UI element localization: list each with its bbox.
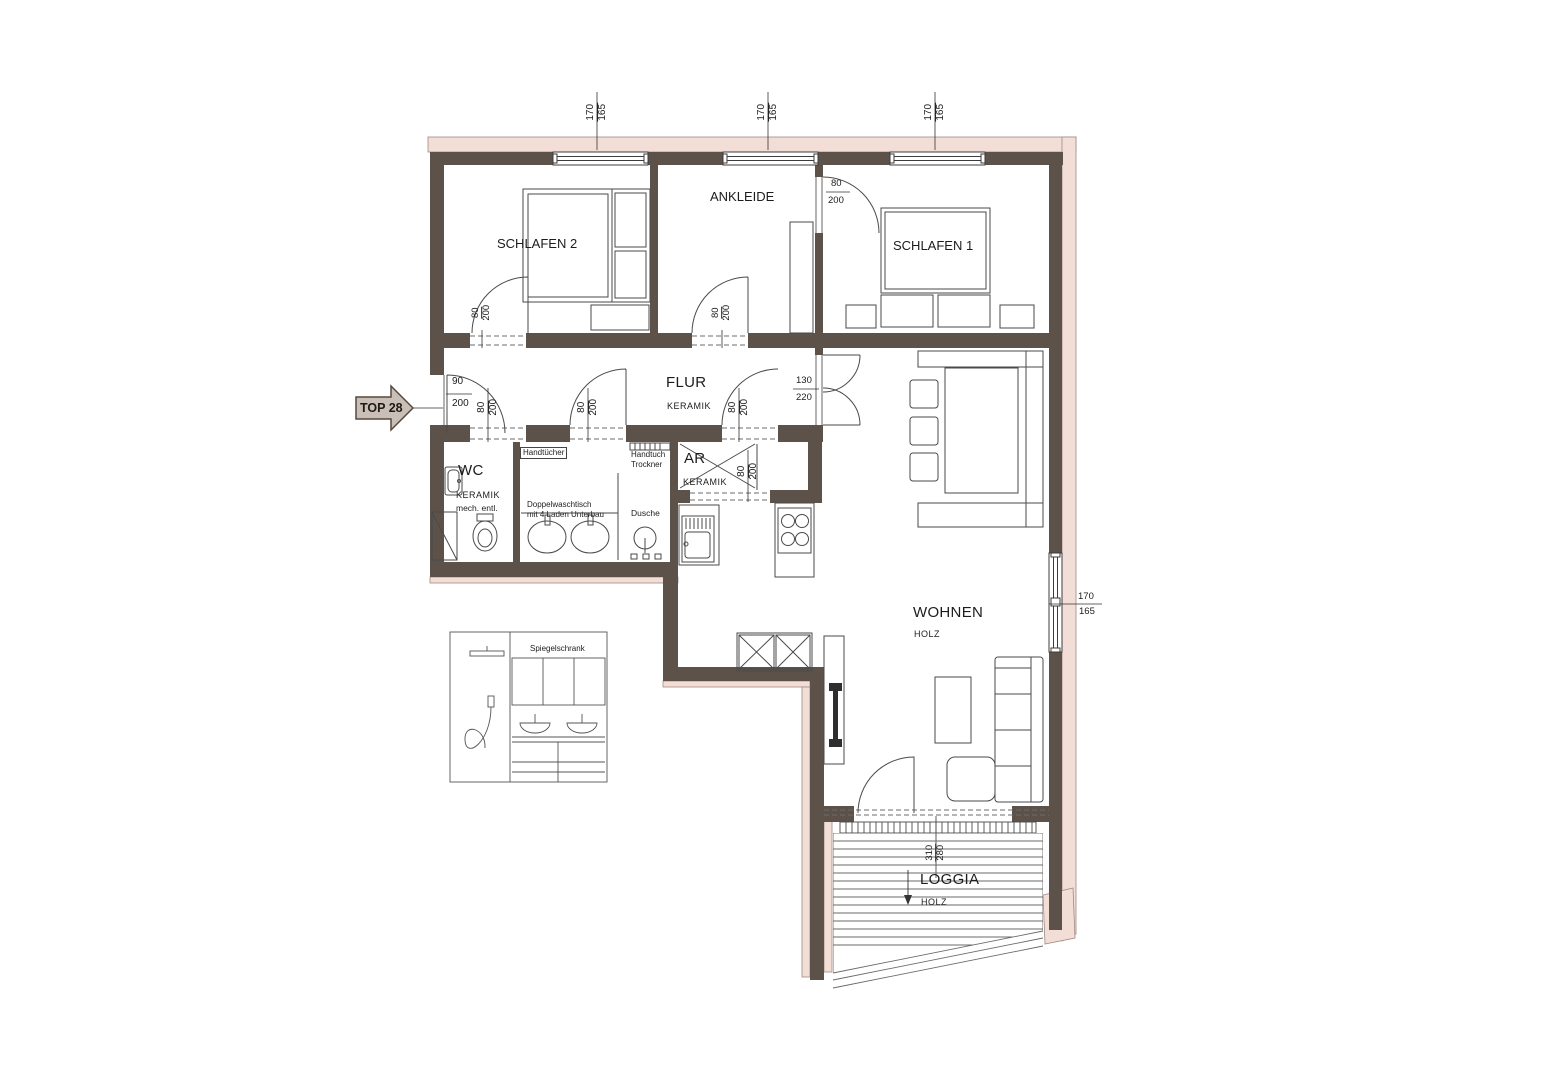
label-dusche: Dusche <box>631 508 660 518</box>
dim-window-right-h: 165 <box>1079 606 1095 617</box>
stove-icon <box>778 508 811 553</box>
window-top-3 <box>890 152 985 165</box>
nightstand <box>1000 305 1034 328</box>
bed-bench <box>591 305 649 330</box>
room-label-schlafen2: SCHLAFEN 2 <box>497 236 577 251</box>
dim-ar-door: 80200 <box>728 451 768 491</box>
floor-label-ar: KERAMIK <box>683 477 727 487</box>
toilet-icon <box>473 514 497 551</box>
loggia-deck-edge <box>833 931 1043 988</box>
furniture-schlafen2 <box>523 189 650 330</box>
room-label-wohnen: WOHNEN <box>913 604 983 621</box>
dim-bath-door: 80200 <box>568 387 608 427</box>
floor-label-loggia: HOLZ <box>921 897 947 907</box>
chair <box>910 380 938 408</box>
dim-window-2: 170165 <box>746 90 790 134</box>
label-spiegelschrank: Spiegelschrank <box>530 644 585 654</box>
room-label-ankleide: ANKLEIDE <box>710 189 774 204</box>
shower-detail <box>465 646 504 748</box>
dim-window-1: 170165 <box>575 90 619 134</box>
dim-entry-w: 90 <box>452 376 463 387</box>
dim-schlafen2-door: 80200 <box>462 293 502 333</box>
dim-wc-door: 80200 <box>468 387 508 427</box>
furniture-wohnen <box>824 351 1043 802</box>
tall-cabinets <box>737 633 812 671</box>
floor-label-wc: KERAMIK <box>456 490 500 500</box>
window-top-1 <box>553 152 648 165</box>
label-handtuch-trockner: Handtuch Trockner <box>631 450 665 469</box>
floor-plan-drawing <box>0 0 1543 1080</box>
furniture-schlafen1 <box>846 208 1034 328</box>
double-sink-icon <box>528 515 609 553</box>
dining-bench <box>918 351 1043 527</box>
nightstand <box>846 305 876 328</box>
floor-plan: SCHLAFEN 2 ANKLEIDE SCHLAFEN 1 FLUR KERA… <box>0 0 1543 1080</box>
window-top-2 <box>723 152 818 165</box>
insulation-band <box>428 137 1076 977</box>
dim-schlafen1-door-w: 80 <box>831 178 842 189</box>
wardrobe <box>790 222 813 333</box>
dim-entry-h: 200 <box>452 398 469 409</box>
shower-icon <box>631 527 661 559</box>
tv-icon <box>829 683 842 747</box>
entrance-marker-top28: TOP 28 <box>360 401 403 415</box>
sofa-icon <box>947 657 1043 802</box>
double-door-leaf-bottom <box>823 388 860 425</box>
window-right <box>1049 553 1062 652</box>
dim-ankleide-door: 80200 <box>702 293 742 333</box>
kitchen <box>679 503 814 671</box>
label-doppelwaschtisch: Doppelwaschtisch mit 4 Laden Unterbau <box>527 500 604 519</box>
walls <box>430 152 1063 980</box>
furniture-ankleide <box>790 222 813 333</box>
room-label-schlafen1: SCHLAFEN 1 <box>893 238 973 253</box>
detail-drawing <box>450 632 607 782</box>
mirror-cabinet <box>512 658 605 782</box>
dim-double-door-h: 220 <box>796 392 812 403</box>
dim-kitchen-door: 80200 <box>719 387 759 427</box>
towel-radiator-icon <box>630 443 670 450</box>
chair <box>910 453 938 481</box>
dining-table <box>945 368 1018 493</box>
dim-window-right-w: 170 <box>1078 591 1094 602</box>
pillow <box>881 295 933 327</box>
dim-loggia-door: 310280 <box>914 831 958 875</box>
coffee-table <box>935 677 971 743</box>
dim-window-3: 170165 <box>913 90 957 134</box>
label-handtuecher: Handtücher <box>520 447 567 459</box>
floor-label-wohnen: HOLZ <box>914 629 940 639</box>
room-label-ar: AR <box>684 450 705 467</box>
room-label-wc: WC <box>458 462 484 479</box>
kitchen-sink-icon <box>682 516 714 562</box>
note-wc-vent: mech. entl. <box>456 503 498 513</box>
double-door-leaf-top <box>823 355 860 392</box>
chair <box>910 417 938 445</box>
loggia-door-arc <box>858 757 914 813</box>
pillow <box>938 295 990 327</box>
dim-double-door-w: 130 <box>796 375 812 386</box>
loggia-entry-arrow <box>904 870 912 905</box>
dim-schlafen1-door-h: 200 <box>828 195 844 206</box>
floor-label-flur: KERAMIK <box>667 401 711 411</box>
room-label-flur: FLUR <box>666 374 706 391</box>
